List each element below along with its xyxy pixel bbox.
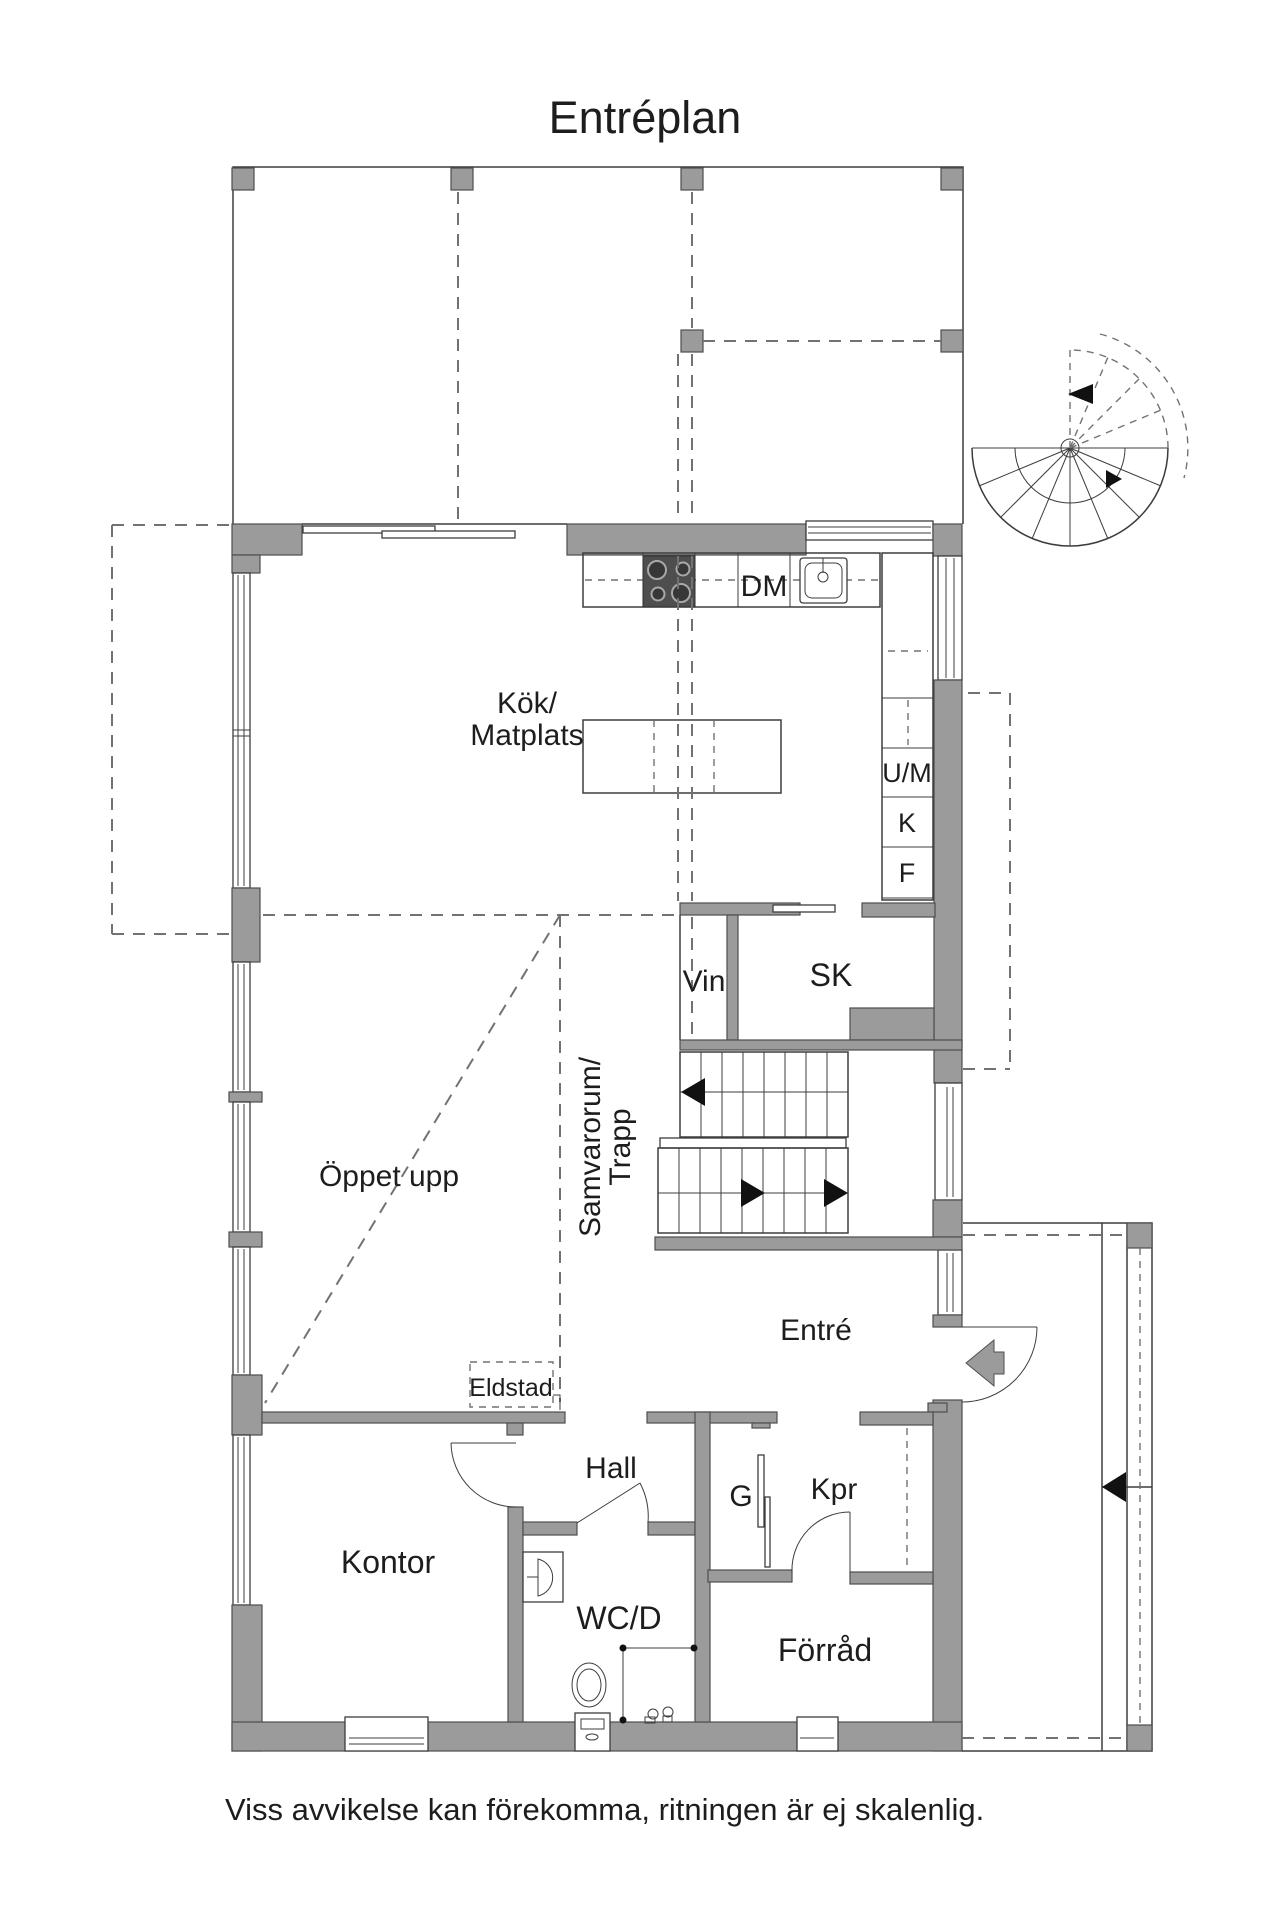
stair-direction-arrow-icon (824, 1179, 848, 1207)
room-label-hall: Hall (585, 1452, 637, 1485)
spiral-stair (972, 334, 1188, 546)
appliance-label-um: U/M (882, 758, 932, 788)
kitchen-island (583, 720, 781, 793)
appliance-label-f: F (899, 858, 916, 888)
floorplan-page: Entréplan Kök/ Matplats DM U/M K F Vin S… (0, 0, 1280, 1920)
entry-porch (962, 1223, 1152, 1751)
page-title: Entréplan (549, 92, 742, 143)
room-label-kok-line1: Kök/ (497, 687, 558, 720)
shower-enclosure (620, 1645, 698, 1724)
stair-up-arrow-icon (681, 1078, 705, 1106)
toilet-icon (572, 1663, 610, 1751)
stove-icon (643, 556, 695, 607)
stair-direction-arrow-icon (741, 1179, 765, 1207)
dashed-reference-lines (112, 192, 1140, 1738)
feature-label-eldstad: Eldstad (469, 1374, 552, 1402)
room-label-vin: Vin (683, 965, 726, 998)
room-label-samvarorum-line2: Trapp (604, 1108, 637, 1185)
room-label-sk: SK (810, 957, 853, 993)
kontor-door (451, 1443, 516, 1507)
floor-drain-icons (645, 1707, 673, 1723)
deck-outline (232, 167, 963, 524)
porch-direction-arrow-icon (1102, 1472, 1126, 1502)
appliance-label-dm: DM (741, 570, 788, 603)
room-label-kpr: Kpr (811, 1473, 858, 1506)
sink-icon (800, 558, 847, 603)
room-label-forrad: Förråd (778, 1632, 872, 1668)
room-label-samvarorum-line1: Samvarorum/ (574, 1056, 607, 1237)
hall-door (577, 1483, 648, 1523)
room-label-entre: Entré (780, 1314, 852, 1347)
entry-door (962, 1327, 1037, 1402)
entry-arrow-icon (966, 1340, 1004, 1386)
floorplan-drawing: Entréplan Kök/ Matplats DM U/M K F Vin S… (0, 0, 1280, 1920)
appliance-label-k: K (898, 808, 916, 838)
room-label-kontor: Kontor (341, 1544, 436, 1580)
closet-label-g: G (729, 1480, 752, 1513)
kpr-door (792, 1512, 850, 1572)
room-label-kok-line2: Matplats (470, 719, 583, 752)
disclaimer-text: Viss avvikelse kan förekomma, ritningen … (225, 1792, 984, 1827)
room-label-oppet-upp: Öppet upp (319, 1160, 459, 1193)
room-label-wcd: WC/D (576, 1600, 661, 1636)
stairs (658, 1052, 848, 1233)
spiral-stair-arrow-icon (1068, 384, 1093, 404)
appliance-column (882, 553, 933, 900)
g-closet-sliding-doors (758, 1455, 770, 1567)
labels: Entréplan Kök/ Matplats DM U/M K F Vin S… (225, 92, 984, 1827)
